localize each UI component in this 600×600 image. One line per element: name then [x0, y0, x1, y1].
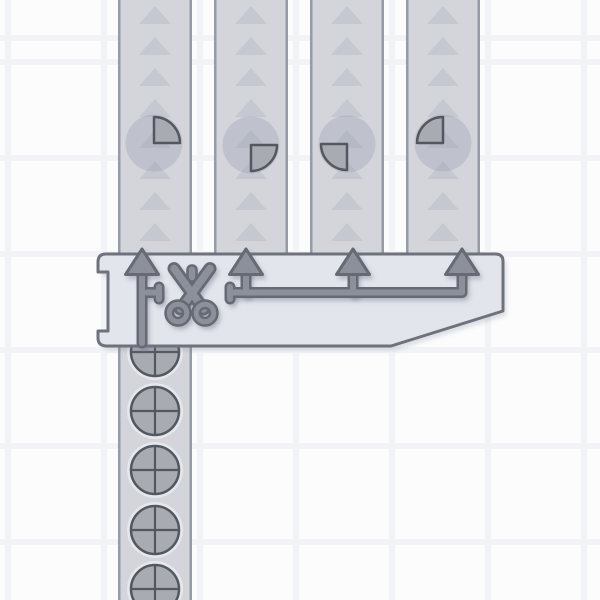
belt-edge-left — [118, 338, 121, 600]
belt-edge-left — [214, 0, 217, 255]
belt-edge-right — [190, 0, 193, 255]
game-viewport — [0, 0, 600, 600]
belt-edge-left — [118, 0, 121, 255]
output-belt-4[interactable] — [406, 0, 480, 255]
input-belt[interactable] — [118, 324, 192, 600]
belt-edge-left — [310, 0, 313, 255]
belt-edge-right — [286, 0, 289, 255]
output-belt-2[interactable] — [214, 0, 288, 255]
belt-edge-right — [478, 0, 481, 255]
output-belt-3[interactable] — [310, 0, 384, 255]
belt-edge-right — [190, 338, 193, 600]
factory-scene — [0, 0, 600, 600]
belt-edge-left — [406, 0, 409, 255]
output-belt-1[interactable] — [118, 0, 192, 255]
belt-edge-right — [382, 0, 385, 255]
